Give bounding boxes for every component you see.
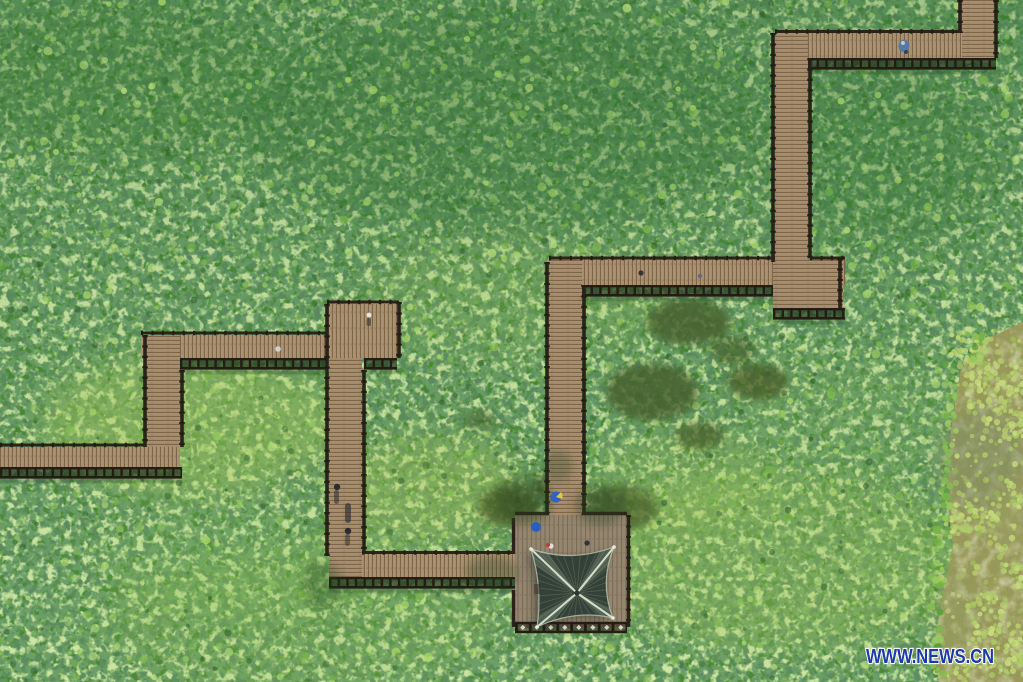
- svg-text:WWW.NEWS.CN: WWW.NEWS.CN: [866, 646, 994, 668]
